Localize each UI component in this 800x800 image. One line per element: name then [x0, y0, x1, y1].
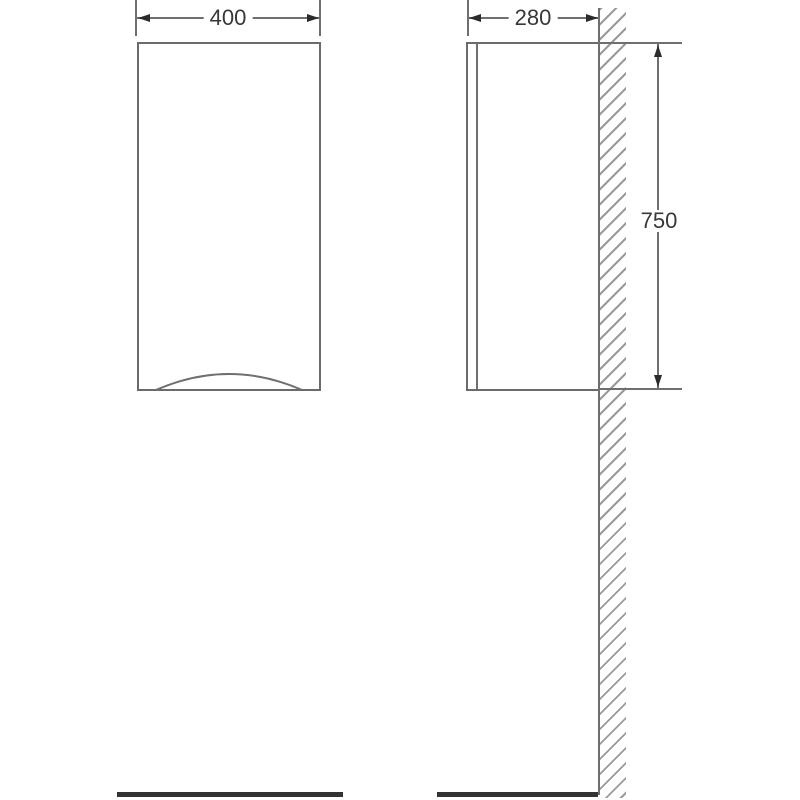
wall-hatch: [600, 8, 626, 798]
dim-height-extension-bottom: [600, 388, 682, 390]
door-panel-line: [476, 44, 478, 389]
dim-depth-label: 280: [509, 7, 558, 29]
dim-width-arrow-right-icon: [307, 14, 319, 22]
front-view-outline: [137, 42, 321, 391]
drawing-canvas: 400 280 750: [0, 0, 800, 800]
dim-height-label: 750: [635, 210, 684, 232]
dim-height-extension-top: [600, 42, 682, 44]
side-view-outline: [466, 42, 600, 391]
dim-depth-arrow-left-icon: [469, 14, 481, 22]
dim-width-label: 400: [204, 7, 253, 29]
dim-height-arrow-bottom-icon: [654, 375, 662, 387]
floor-line-left: [117, 792, 343, 797]
dim-width-arrow-left-icon: [138, 14, 150, 22]
floor-line-right: [437, 792, 598, 797]
dim-height-arrow-top-icon: [654, 45, 662, 57]
dim-depth-arrow-right-icon: [586, 14, 598, 22]
door-handle-arc: [156, 371, 302, 391]
